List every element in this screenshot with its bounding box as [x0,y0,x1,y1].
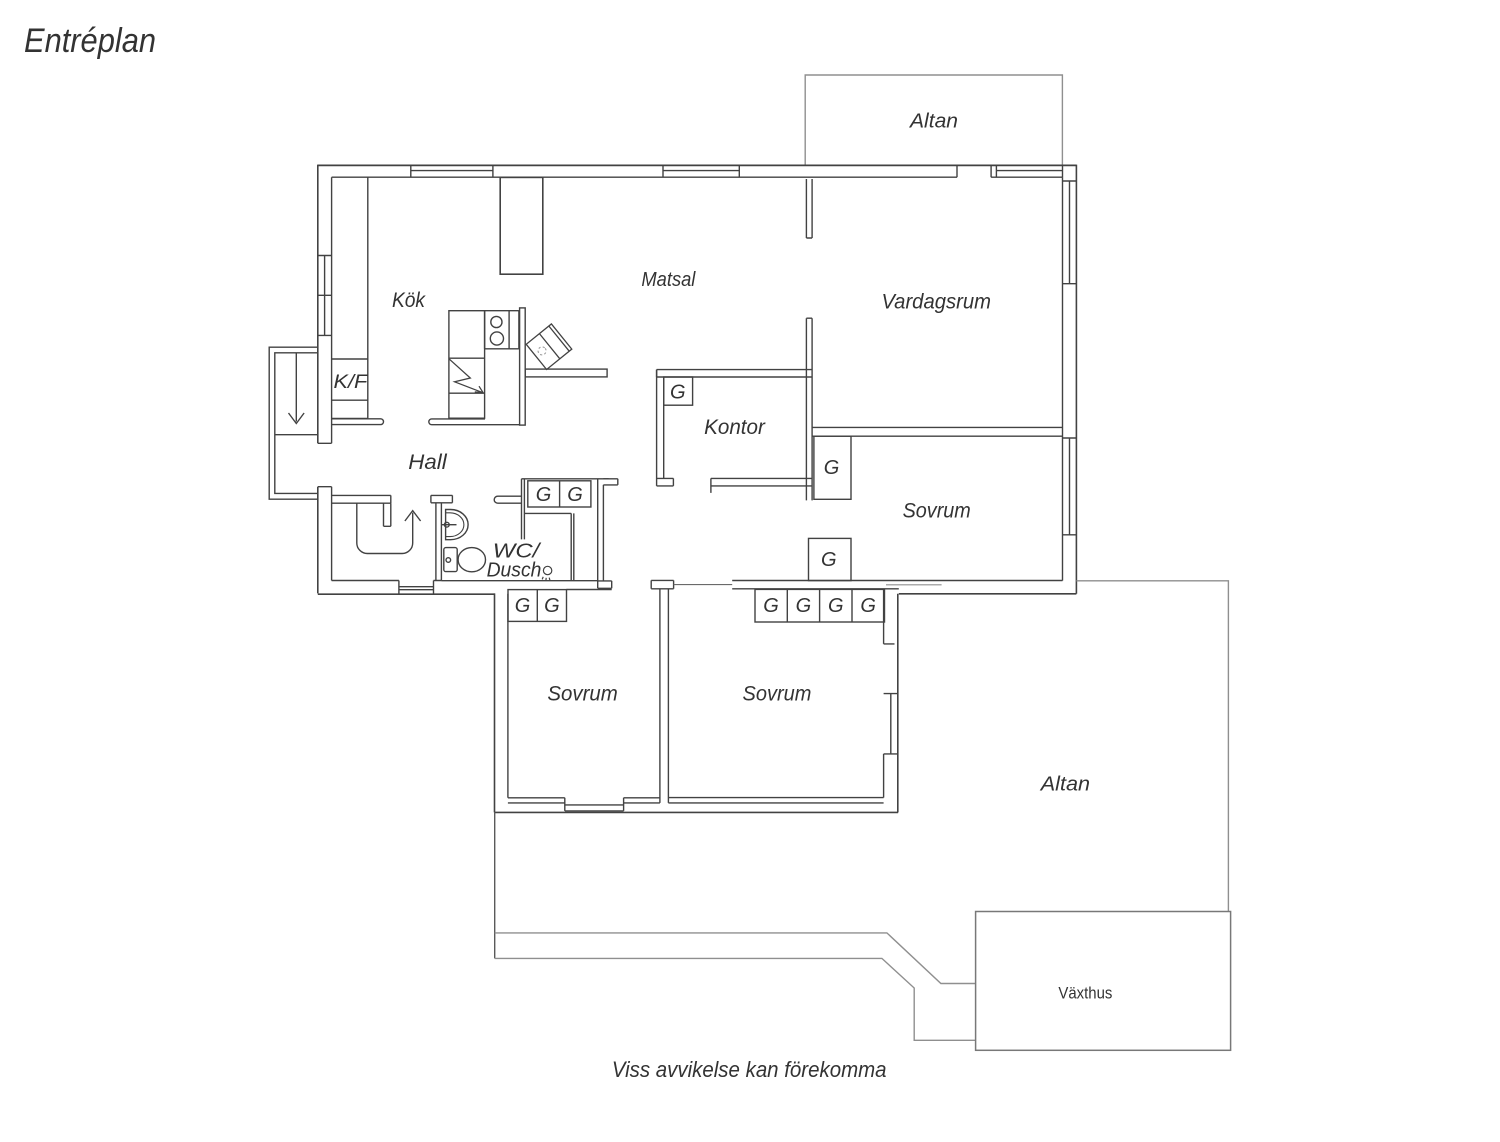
svg-text:Hall: Hall [408,451,448,474]
svg-text:G: G [536,484,552,506]
svg-text:Matsal: Matsal [641,268,696,291]
svg-text:G: G [828,595,844,617]
svg-text:Altan: Altan [1040,774,1090,796]
svg-text:Dusch: Dusch [487,560,542,582]
svg-text:Kök: Kök [392,289,426,312]
svg-text:K/F: K/F [334,372,369,393]
svg-text:Altan: Altan [909,111,958,133]
svg-text:G: G [796,595,812,617]
svg-text:G: G [567,484,583,506]
svg-text:G: G [544,595,560,617]
svg-text:G: G [670,382,686,404]
svg-text:Sovrum: Sovrum [743,683,812,706]
svg-text:G: G [821,549,837,571]
svg-text:G: G [860,595,876,617]
svg-text:Entréplan: Entréplan [24,22,156,60]
svg-text:Växthus: Växthus [1058,983,1112,1002]
svg-text:Kontor: Kontor [704,416,766,439]
svg-text:Vardagsrum: Vardagsrum [881,291,991,314]
svg-text:G: G [515,595,531,617]
svg-text:Viss avvikelse kan förekomma: Viss avvikelse kan förekomma [612,1057,887,1082]
svg-text:Sovrum: Sovrum [547,683,617,706]
svg-text:G: G [763,595,779,617]
svg-text:G: G [824,457,840,479]
svg-text:Sovrum: Sovrum [903,500,971,523]
